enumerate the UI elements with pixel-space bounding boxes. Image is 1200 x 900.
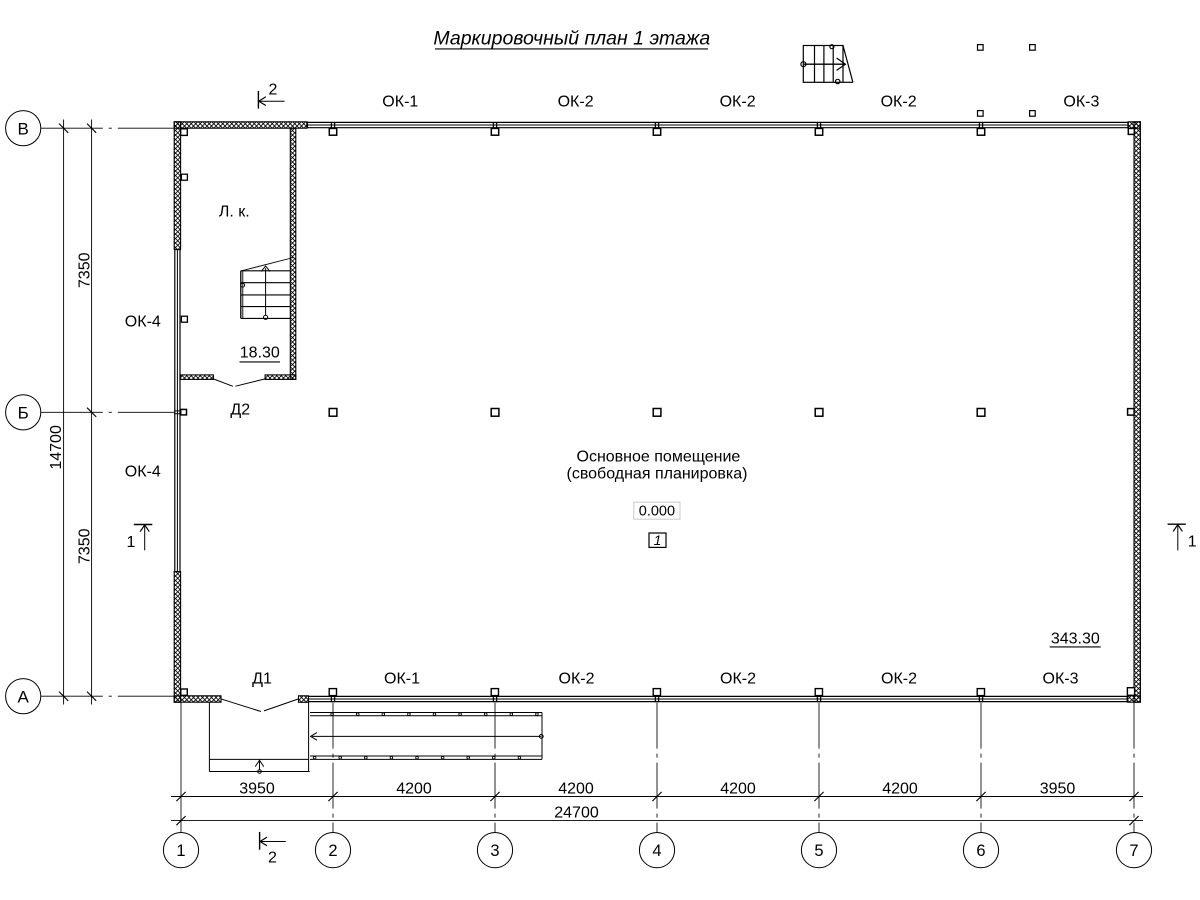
svg-text:14700: 14700 [48,425,65,470]
svg-text:2: 2 [268,850,277,867]
svg-text:4200: 4200 [558,780,594,797]
svg-text:7350: 7350 [76,528,93,564]
svg-text:7: 7 [1129,842,1138,860]
svg-text:ОК-2: ОК-2 [720,671,756,688]
svg-text:Д1: Д1 [252,671,272,688]
svg-text:1: 1 [127,534,136,551]
svg-text:5: 5 [814,842,823,860]
svg-text:ОК-1: ОК-1 [384,671,420,688]
svg-text:ОК-4: ОК-4 [125,464,161,481]
svg-text:6: 6 [976,842,985,860]
svg-text:ОК-2: ОК-2 [881,671,917,688]
svg-text:Л. к.: Л. к. [219,204,250,221]
svg-text:А: А [18,687,30,706]
svg-text:(свободная планировка): (свободная планировка) [567,465,748,482]
svg-text:3950: 3950 [1040,780,1076,797]
svg-text:1: 1 [654,532,662,548]
svg-text:2: 2 [328,842,337,860]
svg-text:Основное помещение: Основное помещение [577,448,741,465]
svg-text:ОК-3: ОК-3 [1063,93,1099,110]
svg-text:1: 1 [176,842,185,860]
svg-text:4200: 4200 [396,780,432,797]
svg-text:24700: 24700 [554,805,599,822]
svg-text:Б: Б [18,404,29,423]
svg-text:18.30: 18.30 [240,344,280,361]
svg-text:Маркировочный план 1 этажа: Маркировочный план 1 этажа [433,27,710,49]
svg-text:3950: 3950 [239,780,275,797]
svg-text:ОК-3: ОК-3 [1043,671,1079,688]
svg-text:2: 2 [268,82,277,99]
svg-text:7350: 7350 [76,252,93,288]
svg-text:0.000: 0.000 [639,504,675,520]
svg-text:4: 4 [652,842,661,860]
svg-text:В: В [18,119,29,138]
svg-text:3: 3 [490,842,499,860]
svg-text:1: 1 [1188,534,1197,551]
svg-text:4200: 4200 [882,780,918,797]
svg-text:ОК-2: ОК-2 [559,671,595,688]
svg-text:ОК-2: ОК-2 [720,93,756,110]
svg-text:ОК-4: ОК-4 [125,314,161,331]
svg-text:4200: 4200 [720,780,756,797]
svg-text:ОК-2: ОК-2 [881,93,917,110]
svg-text:343.30: 343.30 [1051,630,1100,647]
svg-text:Д2: Д2 [230,401,250,418]
svg-text:ОК-1: ОК-1 [382,93,418,110]
svg-text:ОК-2: ОК-2 [558,93,594,110]
